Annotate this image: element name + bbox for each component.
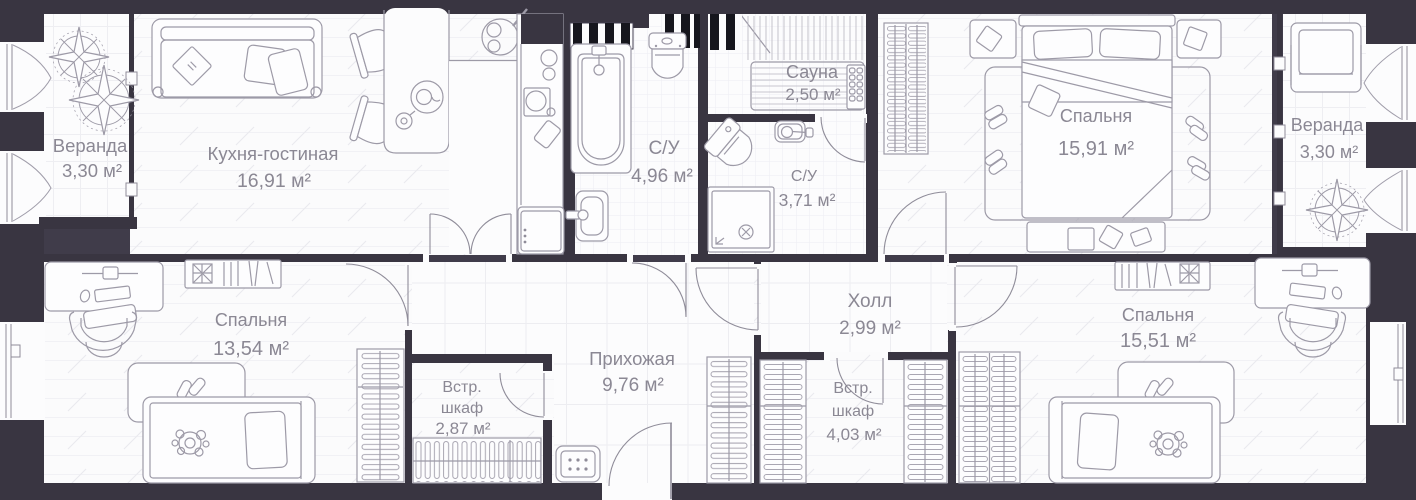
svg-text:Встр.: Встр.: [442, 379, 481, 396]
svg-text:Веранда: Веранда: [1291, 115, 1364, 135]
svg-text:Спальня: Спальня: [1060, 106, 1132, 126]
svg-text:Прихожая: Прихожая: [589, 348, 675, 369]
svg-text:3,30 м²: 3,30 м²: [62, 160, 122, 181]
svg-text:шкаф: шкаф: [832, 403, 874, 420]
svg-text:Веранда: Веранда: [53, 135, 128, 156]
svg-text:Сауна: Сауна: [786, 62, 839, 82]
svg-text:4,03 м²: 4,03 м²: [826, 425, 881, 444]
svg-text:15,91 м²: 15,91 м²: [1058, 138, 1134, 160]
svg-text:9,76 м²: 9,76 м²: [602, 375, 664, 396]
svg-text:3,71 м²: 3,71 м²: [779, 190, 836, 210]
svg-text:2,87 м²: 2,87 м²: [435, 419, 490, 438]
svg-text:4,96 м²: 4,96 м²: [631, 166, 693, 187]
svg-text:Кухня-гостиная: Кухня-гостиная: [208, 143, 339, 164]
svg-text:2,99 м²: 2,99 м²: [839, 318, 901, 339]
svg-text:шкаф: шкаф: [441, 400, 483, 417]
svg-text:Спальня: Спальня: [1122, 305, 1194, 325]
svg-text:С/У: С/У: [648, 138, 680, 159]
svg-text:С/У: С/У: [791, 168, 818, 185]
svg-text:Встр.: Встр.: [833, 380, 872, 397]
svg-text:16,91 м²: 16,91 м²: [237, 170, 312, 192]
svg-text:3,30 м²: 3,30 м²: [1300, 142, 1358, 162]
svg-text:Холл: Холл: [848, 291, 893, 312]
svg-text:2,50 м²: 2,50 м²: [785, 85, 840, 104]
svg-text:Спальня: Спальня: [215, 310, 287, 330]
svg-text:13,54 м²: 13,54 м²: [213, 338, 289, 360]
svg-text:15,51 м²: 15,51 м²: [1120, 330, 1196, 352]
